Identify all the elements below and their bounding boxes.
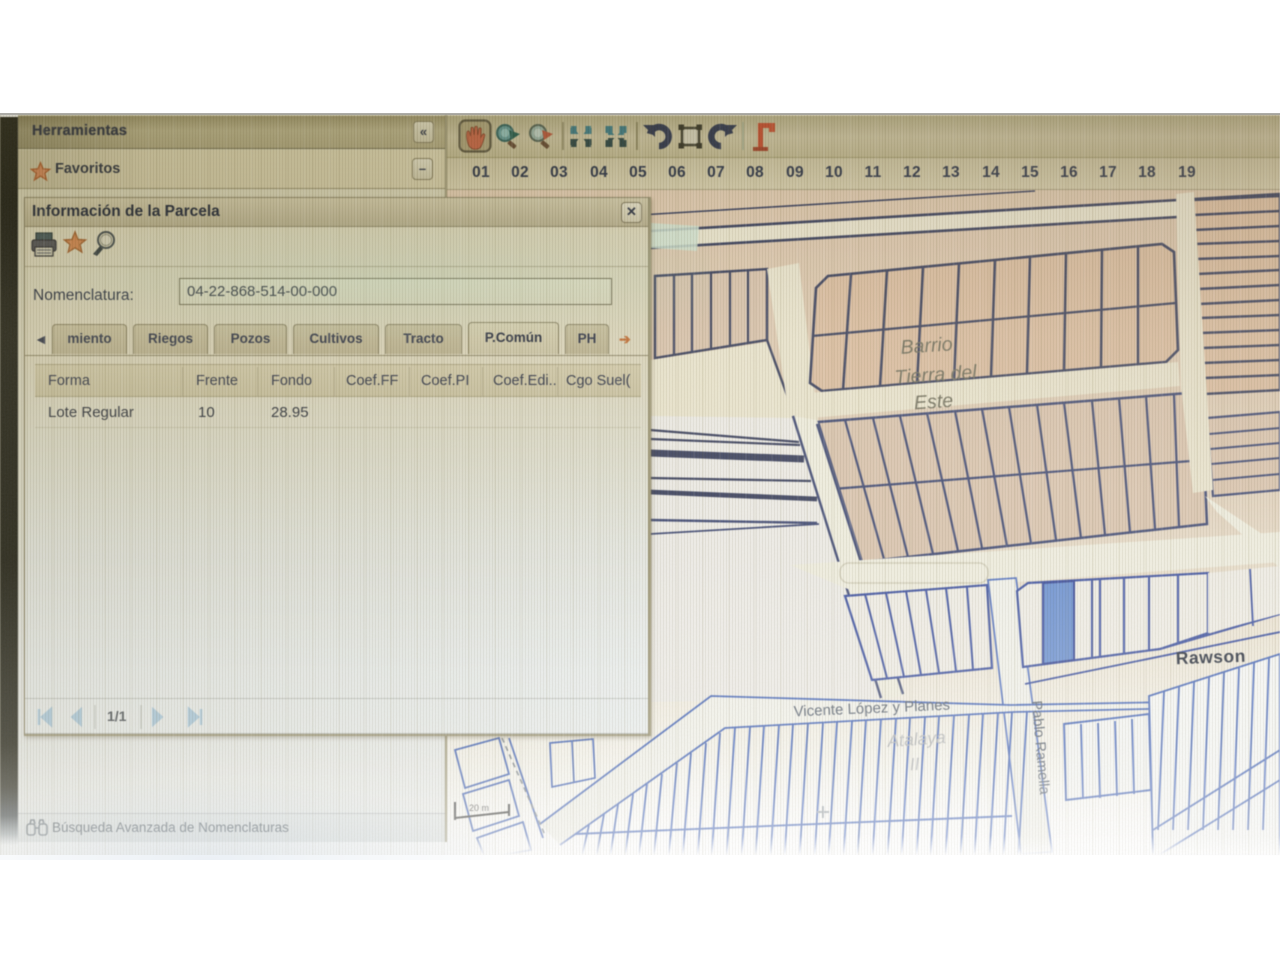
svg-text:II: II [909, 754, 920, 775]
svg-text:Barrio: Barrio [900, 333, 954, 359]
svg-text:Rawson: Rawson [1175, 646, 1246, 668]
svg-text:Atalaya: Atalaya [886, 727, 947, 751]
svg-text:20 m: 20 m [469, 803, 489, 813]
svg-text:Este: Este [913, 390, 954, 415]
